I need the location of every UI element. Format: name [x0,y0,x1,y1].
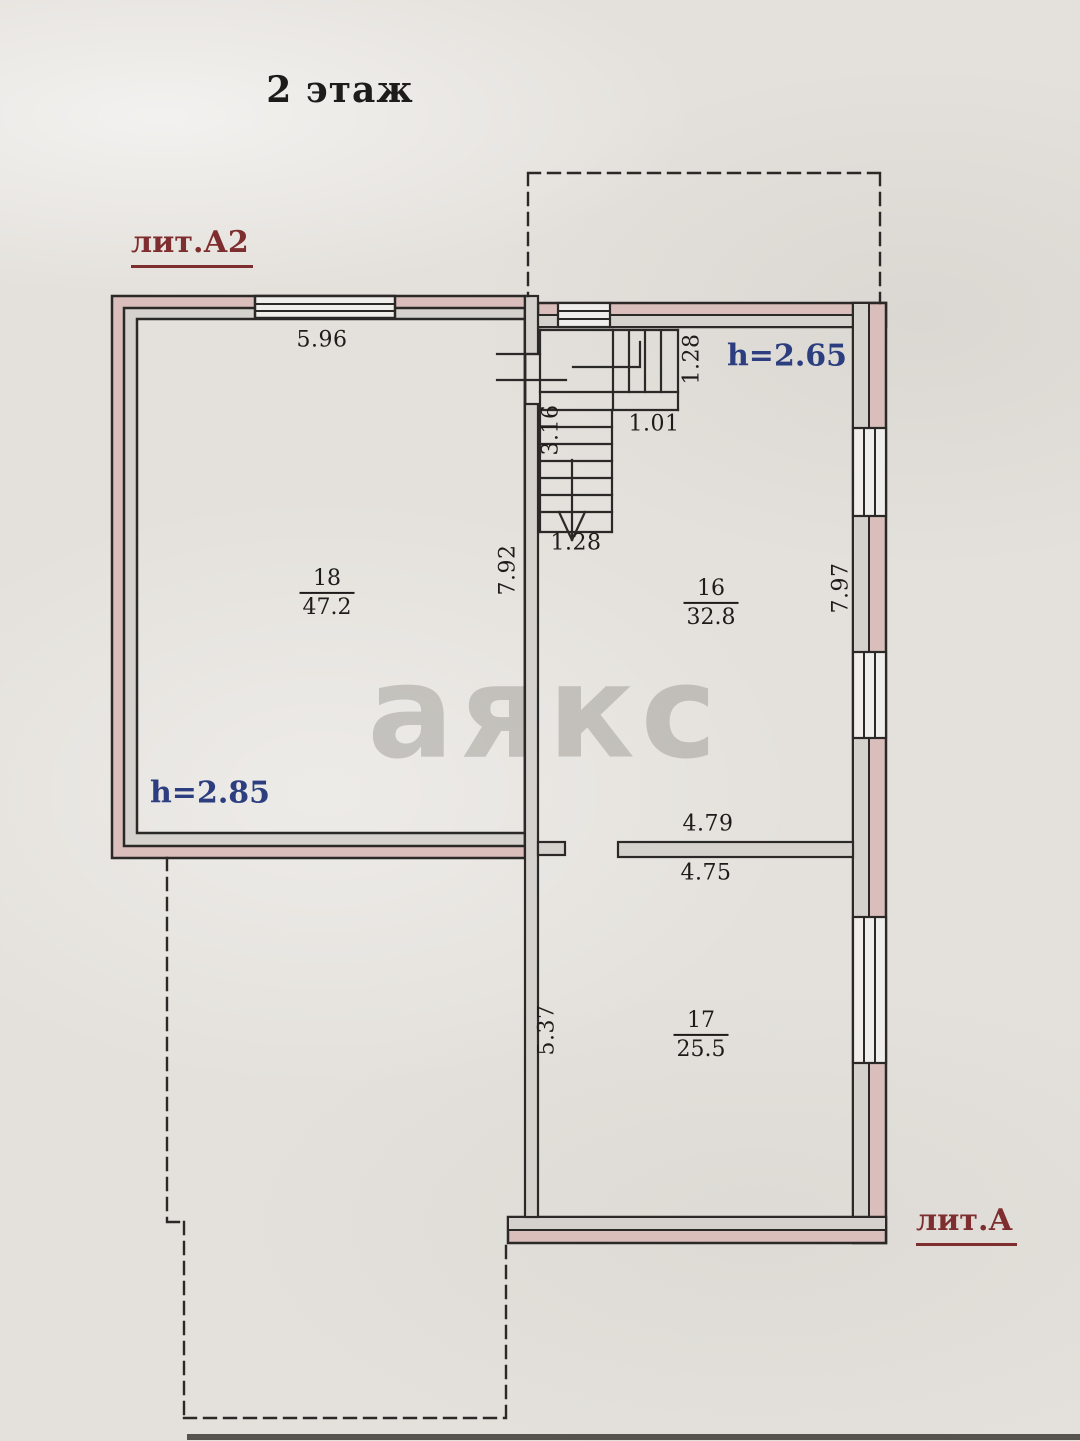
dim-stairs-landing: 1.01 [629,412,680,437]
dim-stairs-upper-width: 1.28 [680,334,705,385]
room-16-area: 32.8 [684,602,739,629]
window-top-a [558,303,610,327]
dim-partition-lower: 4.75 [681,861,732,886]
dim-stairs-lower-width: 1.28 [551,531,602,556]
dim-room18-depth: 7.92 [496,545,521,596]
room-16-number: 16 [697,577,725,600]
room-18-area: 47.2 [300,592,355,619]
dim-room17-depth: 5.37 [535,1005,560,1056]
room-16-label: 16 32.8 [684,577,739,629]
window-right-3 [853,917,886,1063]
window-right-1 [853,428,886,516]
room-18-label: 18 47.2 [300,567,355,619]
litera-a-label: лит.А [916,1206,1017,1246]
room-17-number: 17 [687,1009,715,1032]
litera-a2-label: лит.А2 [131,228,253,268]
dividing-wall [525,296,538,1217]
room-17-label: 17 25.5 [674,1009,729,1061]
stairs-down-arrow [559,460,585,540]
dim-partition-upper: 4.79 [683,812,734,837]
dim-room16-depth: 7.97 [829,563,854,614]
floorplan-page: аякс [0,0,1080,1441]
dim-top-wall: 5.96 [297,328,348,353]
dim-stairs-flight: 3.16 [539,405,564,456]
upper-flight-treads [629,332,661,392]
window-top-a2 [255,296,395,318]
height-label-a2: h=2.85 [150,776,270,811]
door-opening-lines [497,354,566,380]
room-17-area: 25.5 [674,1034,729,1061]
height-label-a: h=2.65 [727,339,847,374]
dashed-outline-terrace [167,858,506,1418]
room-18-number: 18 [313,567,341,590]
partition-16-17 [538,842,853,857]
floor-title: 2 этаж [266,69,414,111]
dashed-outline-top [528,173,880,303]
window-right-2 [853,652,886,738]
